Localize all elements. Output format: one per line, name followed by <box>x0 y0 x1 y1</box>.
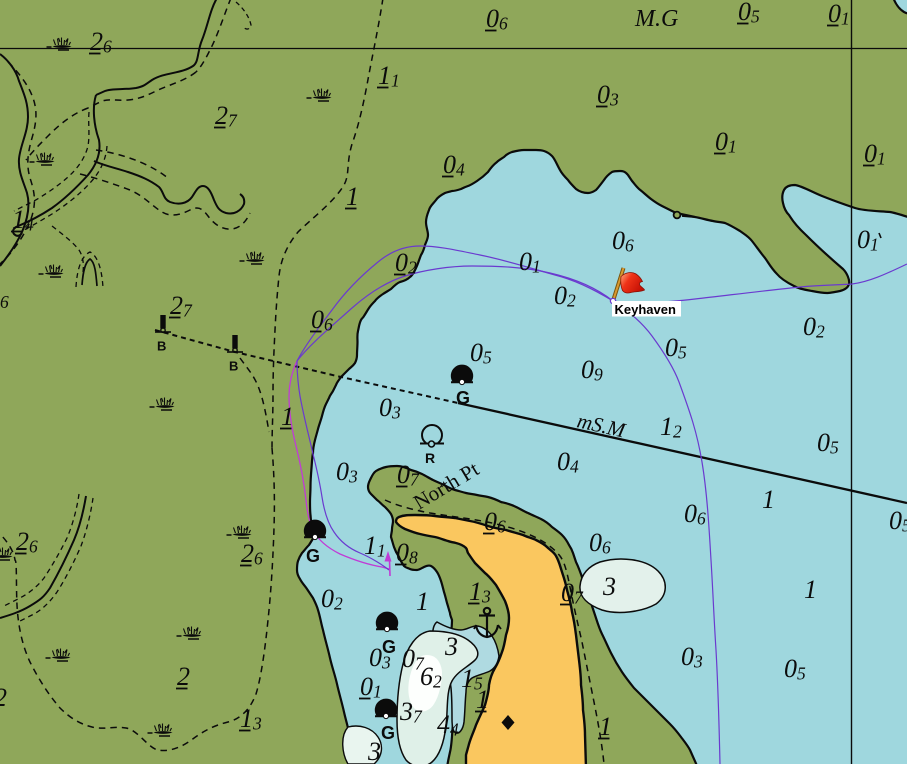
svg-text:2: 2 <box>177 662 190 691</box>
svg-text:R: R <box>425 450 435 466</box>
svg-text:3: 3 <box>602 572 616 601</box>
svg-text:G: G <box>456 388 470 408</box>
svg-text:G: G <box>306 546 320 566</box>
svg-text:3: 3 <box>444 632 458 661</box>
svg-text:1: 1 <box>762 485 775 514</box>
svg-text:Keyhaven: Keyhaven <box>615 302 676 317</box>
svg-text:1: 1 <box>281 402 294 431</box>
svg-text:1: 1 <box>416 587 429 616</box>
svg-text:G: G <box>381 723 395 743</box>
svg-text:2: 2 <box>0 683 7 712</box>
svg-text:M.G: M.G <box>634 6 678 32</box>
svg-text:1: 1 <box>346 182 359 211</box>
svg-text:1: 1 <box>804 575 817 604</box>
svg-text:6: 6 <box>0 292 9 312</box>
svg-text:3: 3 <box>367 737 381 764</box>
svg-text:1: 1 <box>599 712 612 741</box>
svg-text:B: B <box>229 359 238 374</box>
svg-text:B: B <box>157 339 166 354</box>
